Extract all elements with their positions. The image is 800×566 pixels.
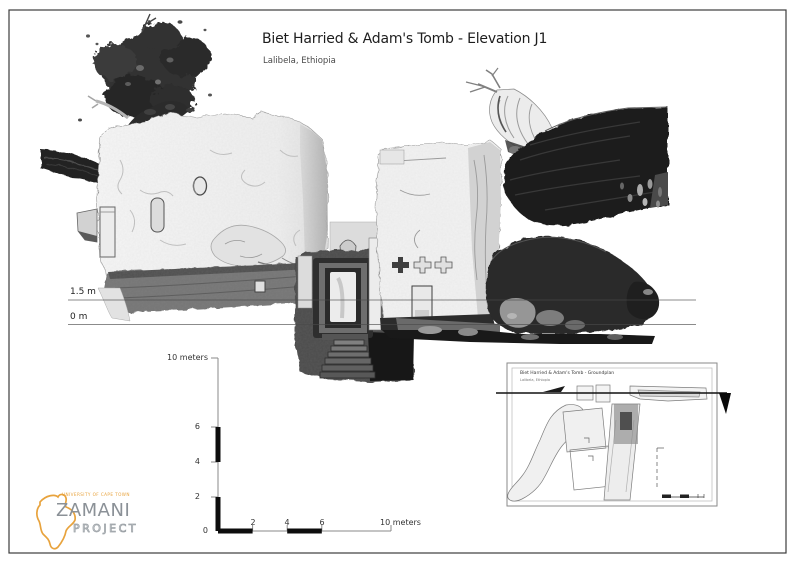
scale-htick-6: 6 [316,518,328,527]
datum-label-lower: 0 m [70,312,87,322]
second-wall [369,140,501,334]
inset-title: Biet Harried & Adam's Tomb - Groundplan [520,371,614,376]
drawing-sheet: Biet Harried & Adam's Tomb - Elevation J… [0,0,800,566]
scale-origin-label: 0 [194,526,208,535]
inset-subtitle: Lalibela, Ethiopia [520,378,550,382]
scale-bar [211,358,391,534]
scale-bar-segments [216,427,322,534]
cross-openings [392,257,452,273]
datum-label-upper: 1.5 m [70,287,96,297]
scale-horizontal-max-label: 10 meters [380,518,421,527]
logo-name: ZAMANI [56,502,130,520]
wall-left-door [100,207,115,257]
logo-institution: UNIVERSITY OF CAPE TOWN [62,492,130,497]
sheet-artwork [0,0,800,566]
scale-htick-2: 2 [247,518,259,527]
elevation-render [40,14,668,382]
logo-subname: PROJECT [73,523,138,534]
main-wall [77,104,328,285]
sheet-subtitle: Lalibela, Ethiopia [263,56,336,66]
section-arrow-right [719,393,731,414]
scale-htick-4: 4 [281,518,293,527]
inset-map [496,363,731,506]
scale-vtick-6: 6 [186,422,200,431]
sheet-title: Biet Harried & Adam's Tomb - Elevation J… [262,31,547,47]
scale-vtick-4: 4 [186,457,200,466]
scale-vertical-max-label: 10 meters [150,353,208,362]
parapet-notch [255,281,265,292]
scale-vtick-2: 2 [186,492,200,501]
inset-scale-bar [662,494,704,498]
wall-niche [151,198,164,232]
